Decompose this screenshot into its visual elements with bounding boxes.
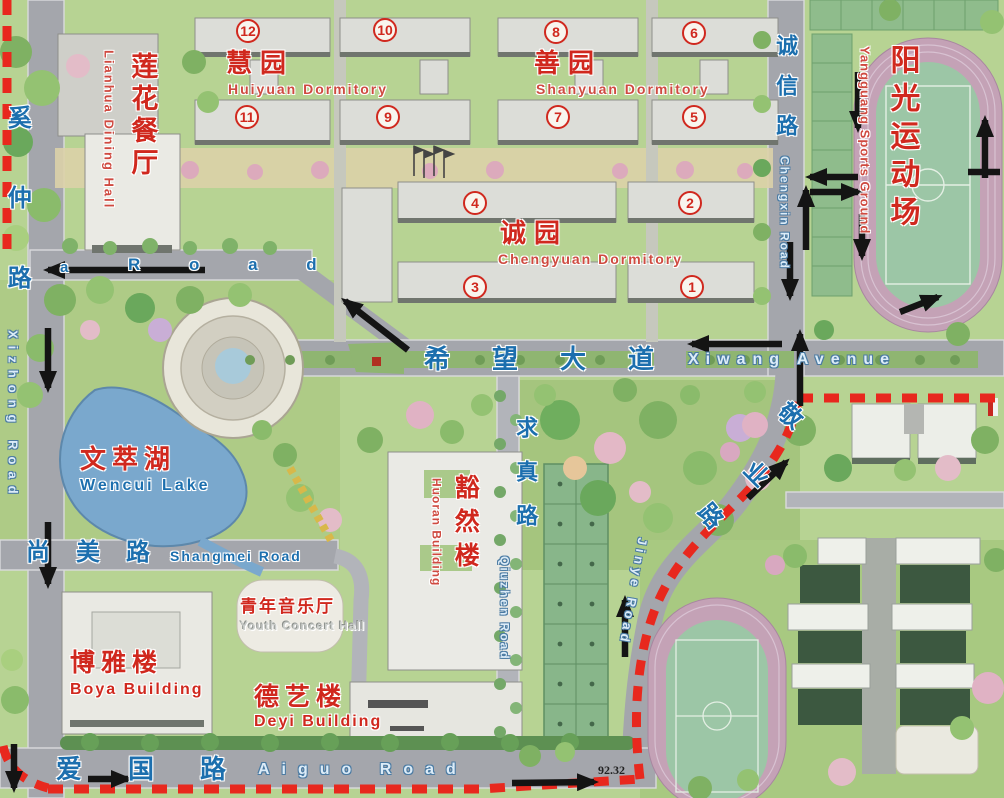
aiguo-road-label-en: Aiguo Road bbox=[258, 762, 468, 779]
yangguang-sports-ground-label-zh: 阳光运动场 bbox=[886, 44, 918, 234]
building-number-badge: 12 bbox=[236, 19, 260, 43]
circular-plaza bbox=[163, 298, 303, 438]
chengxin-road-label-zh: 诚信路 bbox=[774, 34, 797, 154]
building-number-badge: 5 bbox=[682, 105, 706, 129]
wencui-lake-label-zh: 文萃湖 bbox=[80, 446, 176, 473]
concert-hall-building bbox=[237, 580, 343, 652]
red-marker bbox=[372, 357, 381, 366]
aiguo-road-label-zh: 爱国路 bbox=[56, 756, 272, 783]
xizhong-road-label-zh: 奚仲路 bbox=[4, 105, 29, 345]
xiwang-avenue-label-zh: 希望大道 bbox=[424, 346, 696, 373]
deyi-building-label-zh: 德艺楼 bbox=[254, 684, 347, 710]
building-number-badge: 4 bbox=[463, 191, 487, 215]
huoran-building-label-zh: 豁然楼 bbox=[452, 474, 478, 576]
building-number-badge: 1 bbox=[680, 275, 704, 299]
chengyuan-dormitory-label-en: Chengyuan Dormitory bbox=[498, 252, 683, 267]
huoran-building-label-en: Huoran Building bbox=[430, 478, 443, 646]
shangmei-road-label-zh: 尚美路 bbox=[26, 540, 176, 565]
route-arrow bbox=[512, 782, 594, 783]
huiyuan-dormitory-label-en: Huiyuan Dormitory bbox=[228, 82, 388, 97]
building-number-badge: 9 bbox=[376, 105, 400, 129]
wencui-lake-label-en: Wencui Lake bbox=[80, 478, 211, 495]
boya-building-label-zh: 博雅楼 bbox=[70, 650, 163, 676]
building-number-badge: 6 bbox=[682, 21, 706, 45]
shangmei-road-label-en: Shangmei Road bbox=[170, 549, 302, 564]
youth-concert-hall-label-en: Youth Concert Hall bbox=[240, 620, 365, 633]
building-number-badge: 10 bbox=[373, 18, 397, 42]
east-track bbox=[648, 598, 786, 798]
qiuzhen-road-label-en: Qiuzhen Road bbox=[498, 556, 511, 762]
building-number-badge: 3 bbox=[463, 275, 487, 299]
north-road-label: R o a d bbox=[128, 256, 339, 274]
youth-concert-hall-label-zh: 青年音乐厅 bbox=[240, 598, 335, 616]
xiwang-avenue-label-en: Xiwang Avenue bbox=[688, 352, 896, 369]
boya-building-label-en: Boya Building bbox=[70, 682, 204, 699]
building-number-badge: 11 bbox=[235, 105, 259, 129]
lianhua-dining-hall-label-zh: 莲花餐厅 bbox=[128, 52, 156, 180]
qiuzhen-road-label-zh: 求真路 bbox=[514, 416, 537, 548]
east-road bbox=[786, 492, 1004, 508]
building-number-badge: 8 bbox=[544, 20, 568, 44]
deyi-building-label-en: Deyi Building bbox=[254, 714, 382, 731]
shanyuan-dormitory-label-en: Shanyuan Dormitory bbox=[536, 82, 710, 97]
chengyuan-dormitory-label-zh: 诚园 bbox=[500, 220, 568, 247]
building-number-badge: 2 bbox=[678, 191, 702, 215]
yangguang-sports-ground-label-en: Yangguang Sports Ground bbox=[858, 46, 872, 314]
campus-map: 12 10 8 6 11 9 7 5 4 2 3 1 莲花餐厅 Lianhua … bbox=[0, 0, 1004, 798]
huiyuan-dormitory-label-zh: 慧园 bbox=[226, 50, 294, 77]
lianhua-dining-hall-label-en: Lianhua Dining Hall bbox=[102, 50, 116, 255]
xizhong-road-label-en: Xizhong Road bbox=[6, 330, 20, 660]
elevation-annotation: 92.32 bbox=[598, 764, 625, 777]
building-number-badge: 7 bbox=[546, 105, 570, 129]
north-road-label-prefix: a bbox=[60, 260, 68, 276]
shanyuan-dormitory-label-zh: 善园 bbox=[534, 50, 602, 77]
chengxin-road-label-en: Chengxin Road bbox=[778, 156, 791, 344]
